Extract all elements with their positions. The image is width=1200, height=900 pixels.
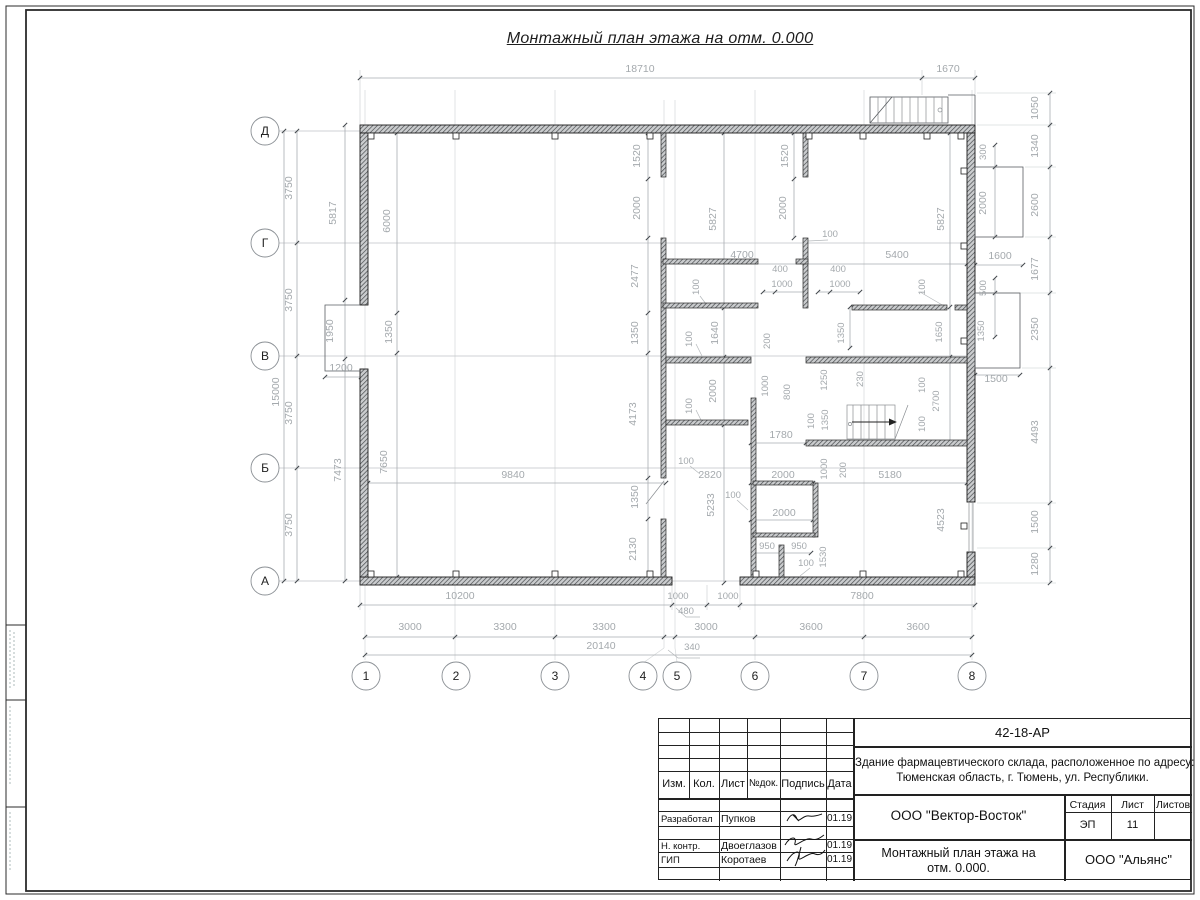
title-block: Изм. Кол. Лист №док. Подпись Дата Разраб… [658,718,1191,880]
dim-label: 20140 [586,640,615,652]
dim-label: 2600 [1029,193,1041,217]
tb-object-line2: Тюменская область, г. Тюмень, ул. Респуб… [855,772,1190,784]
tb-sheet-label: Лист [1111,799,1154,811]
axis-label: 3 [552,669,559,683]
dim-label: 2000 [707,379,719,403]
tb-col-podpis: Подпись [780,778,826,790]
tb-name: Двоеглазов [721,840,780,852]
dim-label: 1600 [988,250,1012,262]
dim-label: 5827 [707,207,719,231]
dim-label: 1350 [629,485,641,509]
dim-label: 6000 [381,209,393,233]
tb-role: ГИП [661,855,719,866]
drawing-sheet: { "sheet": { "title": "Монтажный план эт… [0,0,1200,900]
axis-bubble: 3 [541,662,569,690]
dim-label: 1350 [836,322,847,343]
dim-label: 1050 [1029,96,1041,120]
tb-name: Коротаев [721,854,780,866]
dim-label: 1000 [760,375,771,396]
dim-label: 500 [978,280,989,296]
dim-label: 1340 [1029,134,1041,158]
dim-label: 100 [917,416,928,432]
tb-col-izm: Изм. [659,778,689,790]
dim-label: 1000 [717,591,738,602]
axis-label: 4 [640,669,647,683]
dim-label: 340 [684,642,700,653]
dim-label: 1500 [1029,510,1041,534]
dim-label: 2700 [931,390,942,411]
axis-label: 5 [674,669,681,683]
axis-bubble: В [251,342,279,370]
dim-label: 100 [917,279,928,295]
axis-label: В [261,349,269,363]
dim-label: 4523 [935,508,947,532]
tb-org: ООО "Вектор-Восток" [853,808,1064,823]
dim-label: 100 [684,398,695,414]
dim-label: 100 [917,377,928,393]
dim-label: 5817 [327,201,339,225]
tb-role: Н. контр. [661,841,719,852]
dim-label: 2820 [698,469,722,481]
dim-label: 100 [684,331,695,347]
axis-bubble: 4 [629,662,657,690]
axis-label: Д [261,124,269,138]
dim-label: 1650 [934,321,945,342]
dim-label: 200 [762,333,773,349]
axis-bubble: 5 [663,662,691,690]
axis-label: 1 [363,669,370,683]
dim-label: 1640 [709,321,721,345]
dim-label: 200 [838,462,849,478]
tb-role: Разработал [661,814,719,825]
dim-label: 480 [678,606,694,617]
dim-label: 1520 [779,144,791,168]
dim-label: 18710 [625,63,654,75]
dim-label: 1520 [631,144,643,168]
dim-label: 100 [822,229,838,240]
dim-label: 1200 [329,362,353,374]
tb-sheet-value: 11 [1111,819,1154,831]
tb-col-data: Дата [826,778,853,790]
dim-label: 100 [798,558,814,569]
interior-stair [847,405,908,439]
interior-partitions [646,133,967,577]
tb-col-kol: Кол. [689,778,719,790]
dim-label: 4173 [627,402,639,426]
dim-label: 5827 [935,207,947,231]
dim-label: 1350 [976,320,987,341]
dim-label: 100 [678,456,694,467]
exterior-stair [870,95,975,125]
tb-sheet-title-line1: Монтажный план этажа на [853,846,1064,860]
axis-label: 6 [752,669,759,683]
dim-label: 3750 [283,288,295,312]
dim-label: 15000 [270,377,282,406]
axis-label: Г [262,236,269,250]
axis-label: 7 [861,669,868,683]
dim-label: 100 [725,490,741,501]
dim-label: 400 [772,264,788,275]
dim-label: 3000 [694,621,718,633]
dim-label: 7650 [378,450,390,474]
dim-label: 3300 [592,621,616,633]
dim-label: 1000 [819,458,830,479]
dim-label: 3750 [283,176,295,200]
tb-col-ndok: №док. [747,778,780,789]
dim-label: 1677 [1029,257,1041,281]
dim-label: 3000 [398,621,422,633]
dim-label: 1350 [383,320,395,344]
dim-label: 100 [691,279,702,295]
dim-label: 2350 [1029,317,1041,341]
axis-bubble: 6 [741,662,769,690]
dimension-lines [284,78,1050,658]
tb-stage-label: Стадия [1064,799,1111,811]
dim-label: 2477 [629,264,641,288]
dim-label: 1500 [984,373,1008,385]
axis-bubbles-rows: Д Г В Б А [251,117,279,595]
plan-title: Монтажный план этажа на отм. 0.000 [400,30,920,48]
tb-sheet-title-line2: отм. 0.000. [853,861,1064,875]
dim-label: 1350 [629,321,641,345]
dim-label: 5233 [705,493,717,517]
frame-left-cells [6,625,26,872]
dim-label: 4700 [730,249,754,261]
axis-label: 2 [453,669,460,683]
extension-lines [360,70,1056,610]
axis-bubble: 1 [352,662,380,690]
axis-bubble: 2 [442,662,470,690]
tb-name: Пупков [721,813,780,825]
dim-label: 400 [830,264,846,275]
dim-label: 9840 [501,469,525,481]
signature [781,833,827,867]
dim-label: 3750 [283,401,295,425]
dim-label: 2000 [631,196,643,220]
dim-label: 7473 [332,458,344,482]
tb-object-line1: Здание фармацевтического склада, располо… [855,757,1190,769]
dim-label: 2130 [627,537,639,561]
axis-label: 8 [969,669,976,683]
dim-label: 3750 [283,513,295,537]
axis-bubble: Д [251,117,279,145]
dim-label: 800 [782,384,793,400]
dim-label: 2000 [772,507,796,519]
dim-label: 1000 [829,279,850,290]
axis-bubble: А [251,567,279,595]
signature [783,811,825,825]
tb-company: ООО "Альянс" [1065,852,1192,867]
exterior-walls [360,125,975,585]
dim-label: 5180 [878,469,902,481]
dim-label: 230 [855,371,866,387]
axis-bubble: Б [251,454,279,482]
wall-pilasters [368,133,967,577]
axis-bubble: 7 [850,662,878,690]
dim-label: 1000 [771,279,792,290]
dim-label: 4493 [1029,420,1041,444]
dim-label: 100 [806,413,817,429]
axis-bubble: 8 [958,662,986,690]
dim-label: 300 [978,144,989,160]
tb-doc-code: 42-18-АР [853,725,1192,740]
dim-label: 1780 [769,429,793,441]
dim-label: 1530 [818,546,829,567]
axis-bubbles-cols: 1 2 3 4 5 6 7 8 [352,662,986,690]
dim-label: 1670 [936,63,960,75]
dim-label: 1950 [324,319,336,343]
tb-date: 01.19 [826,813,853,824]
dim-label: 1250 [819,369,830,390]
dim-label: 2000 [777,196,789,220]
dim-label: 950 [759,541,775,552]
axis-label: Б [261,461,269,475]
tb-date: 01.19 [826,840,853,851]
dim-label: 3600 [906,621,930,633]
tb-sheets-label: Листов [1154,799,1192,811]
axis-label: А [261,574,269,588]
dim-label: 1350 [820,409,831,430]
dim-label: 2000 [977,191,989,215]
dim-label: 7800 [850,590,874,602]
dim-label: 10200 [445,590,474,602]
dim-label: 1000 [667,591,688,602]
tb-date: 01.19 [826,854,853,865]
dim-label: 2000 [771,469,795,481]
dim-label: 1280 [1029,552,1041,576]
dim-label: 3300 [493,621,517,633]
dim-label: 3600 [799,621,823,633]
axis-bubble: Г [251,229,279,257]
dim-label: 950 [791,541,807,552]
tb-stage-value: ЭП [1064,819,1111,831]
tb-col-list: Лист [719,778,747,790]
dim-label: 5400 [885,249,909,261]
